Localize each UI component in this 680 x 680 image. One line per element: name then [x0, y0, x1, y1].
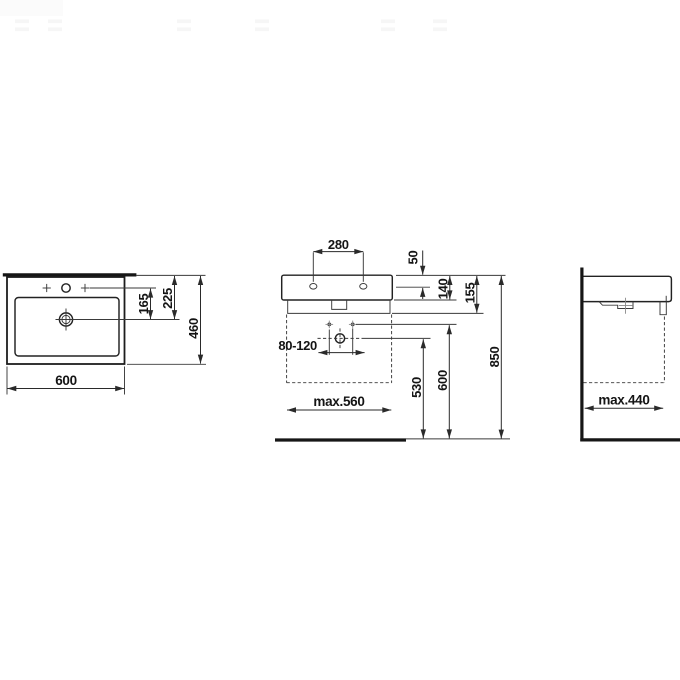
dim-front-tap-to-underside: 140 — [436, 279, 451, 300]
fixing-hole-icon — [349, 321, 357, 329]
drain-cross-icon — [619, 298, 633, 314]
front-apron — [660, 302, 666, 315]
dim-plan-tap-to-drain: 165 — [136, 294, 151, 315]
tap-hole-icon — [62, 284, 70, 292]
drain-flange — [332, 300, 347, 309]
tap-hole-icon — [310, 284, 317, 290]
dim-plan-rear-to-drain: 225 — [160, 288, 175, 309]
dim-plan-width: 600 — [55, 373, 77, 388]
alt-tap-hole-cross-icon — [81, 284, 89, 292]
front-view: 280 — [275, 237, 510, 440]
dim-front-tap-spacing: 280 — [328, 237, 349, 252]
washbasin-technical-drawing: 600 165 225 460 280 — [0, 0, 680, 680]
drain-target-icon — [318, 328, 363, 350]
dim-plan-depth: 460 — [186, 318, 201, 339]
fixing-hole-icon — [326, 321, 334, 329]
alt-tap-hole-cross-icon — [43, 284, 51, 292]
dim-front-drain-height: 530 — [409, 377, 424, 398]
tap-hole-icon — [360, 284, 367, 290]
drawing-canvas: 600 165 225 460 280 — [0, 0, 680, 680]
basin-profile — [584, 276, 672, 301]
plan-view: 600 165 225 460 — [3, 275, 206, 395]
dim-front-body-height: 155 — [462, 283, 477, 304]
dim-front-trap-offset: 80-120 — [278, 338, 317, 353]
side-view: max.440 — [580, 268, 680, 442]
dim-front-fixing-height: 600 — [435, 370, 450, 391]
drain-icon — [56, 309, 180, 331]
dim-front-clearance-width: max.560 — [313, 394, 364, 409]
scan-artifacts — [0, 0, 447, 31]
dim-side-clearance-depth: max.440 — [598, 392, 649, 407]
basin-body — [282, 275, 393, 300]
basin-underside — [288, 300, 390, 313]
dim-front-rim-height: 850 — [487, 347, 502, 368]
dim-front-rim-to-tap: 50 — [406, 251, 421, 265]
